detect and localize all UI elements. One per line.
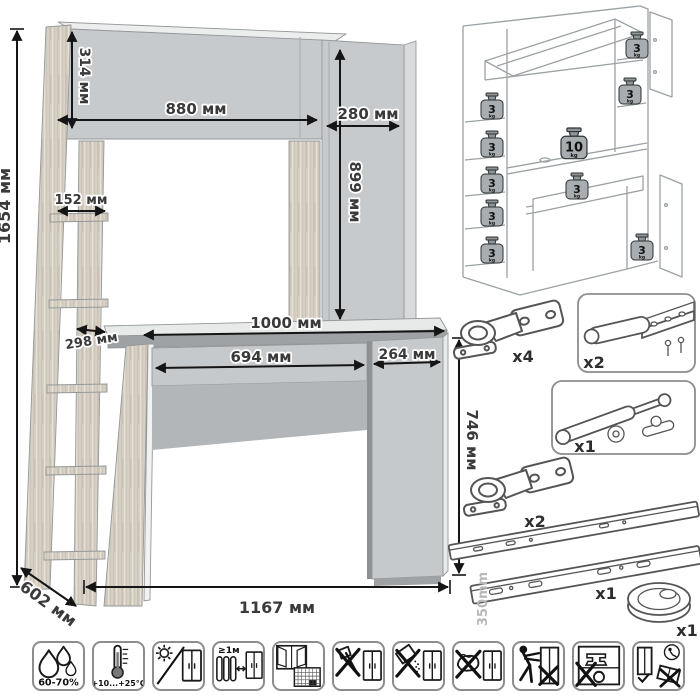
dim-hutch-height: 314 мм	[76, 48, 92, 105]
dim-drawer-width: 694 мм	[230, 348, 291, 366]
weight-icon: 3 kg	[481, 131, 503, 158]
dim-desk-height: 746 мм	[463, 409, 481, 470]
dim-total-height: 1654 мм	[0, 168, 14, 244]
wardrobe-icon	[364, 651, 382, 680]
care-icon-no-sharp-tools	[332, 641, 385, 691]
dim-total-width: 1167 мм	[239, 598, 315, 617]
kettlebell-icon	[594, 672, 604, 682]
care-icon-no-wet-cleaning	[452, 641, 505, 691]
dim-pedestal-width: 264 мм	[379, 347, 436, 363]
top-cabinet-side	[404, 41, 416, 330]
sun-icon	[156, 645, 173, 662]
dim-desktop-width: 1000 мм	[250, 314, 322, 332]
svg-text:21: 21	[310, 680, 316, 686]
magnifier-inset-icon	[664, 645, 679, 660]
care-icon-heat-distance: ≥1м	[212, 641, 265, 691]
open-window-icon	[277, 646, 306, 669]
hardware-section: x4 x2	[449, 294, 700, 640]
grommet-qty: x1	[676, 621, 697, 640]
svg-text:kg: kg	[489, 114, 495, 120]
svg-text:kg: kg	[570, 153, 578, 159]
svg-text:60-70%: 60-70%	[38, 677, 79, 688]
hinge-qty: x4	[512, 347, 533, 366]
hinge-icon	[453, 299, 564, 359]
open-door-bottom	[660, 175, 682, 277]
thermometer-icon	[112, 646, 128, 678]
hutch-open-flap	[485, 19, 643, 76]
dim-top-cabinet-width: 280 мм	[337, 105, 398, 123]
cabinet-interior-icon	[579, 647, 619, 685]
care-icon-no-overload	[572, 641, 625, 691]
wardrobe-icon	[246, 652, 262, 678]
open-door-top	[650, 12, 672, 97]
radiator-icon	[217, 657, 236, 681]
care-icon-no-sunlight	[152, 641, 205, 691]
svg-text:kg: kg	[489, 152, 495, 158]
care-icon-ventilation: 21	[272, 641, 325, 691]
weight-icon: 3 kg	[566, 173, 588, 200]
svg-text:kg: kg	[489, 221, 495, 227]
niche-partition	[289, 141, 320, 330]
weight-icon: 3 kg	[481, 167, 503, 194]
weight-icon: 3 kg	[631, 234, 653, 261]
svg-text:kg: kg	[489, 258, 495, 264]
slides-qty: x1	[595, 584, 616, 603]
cable-grommet-icon	[628, 583, 690, 622]
svg-text:≥1м: ≥1м	[218, 645, 240, 656]
hutch-front	[61, 29, 322, 139]
pedestal-door	[372, 337, 443, 579]
check-mark	[639, 674, 649, 681]
svg-text:+10...+25°С: +10...+25°С	[94, 679, 143, 688]
svg-text:kg: kg	[489, 188, 495, 194]
double-arrow-icon	[237, 666, 245, 671]
push-latch-qty: x2	[583, 353, 604, 372]
weight-icon: 3 kg	[619, 78, 641, 105]
weight-icon: 3 kg	[481, 237, 503, 264]
person-icon	[519, 646, 539, 682]
svg-text:kg: kg	[574, 194, 580, 200]
powder-box-icon	[396, 645, 420, 673]
care-icon-no-abrasives	[392, 641, 445, 691]
calendar-icon: 21	[294, 668, 320, 687]
care-icon-humidity: 60-70%	[32, 641, 85, 691]
gas-lift-icon	[554, 392, 675, 447]
care-icon-no-dragging	[512, 641, 565, 691]
dim-top-cabinet-height: 899 мм	[346, 161, 364, 222]
svg-text:kg: kg	[634, 53, 640, 59]
wardrobe-icon	[484, 651, 502, 680]
weight-icon: 10 kg	[561, 128, 587, 159]
svg-text:kg: kg	[639, 255, 645, 261]
desk-side-panel	[104, 344, 148, 606]
furniture-dimension-drawing: 314 мм 880 мм 280 мм 1654 мм 152 мм 899 …	[0, 0, 700, 640]
diagram-root: 314 мм 880 мм 280 мм 1654 мм 152 мм 899 …	[0, 0, 700, 700]
push-latch-icon	[583, 302, 694, 356]
upright-cabinet-icon	[638, 648, 652, 682]
care-icon-keep-upright	[632, 641, 685, 691]
slide-length-label: 350mm	[476, 572, 491, 626]
weight-icon: 3 kg	[481, 93, 503, 120]
dim-hutch-width: 880 мм	[165, 100, 226, 118]
water-drops-icon	[40, 647, 76, 678]
wardrobe-icon	[183, 650, 201, 680]
desk-back-panel	[152, 381, 367, 450]
gas-lift-qty: x1	[574, 437, 595, 456]
care-icon-temperature: +10...+25°С	[92, 641, 145, 691]
svg-text:kg: kg	[627, 99, 633, 105]
dim-shelf-width: 152 мм	[55, 193, 108, 208]
wardrobe-icon	[424, 651, 442, 680]
weight-icon: 3 kg	[481, 200, 503, 227]
